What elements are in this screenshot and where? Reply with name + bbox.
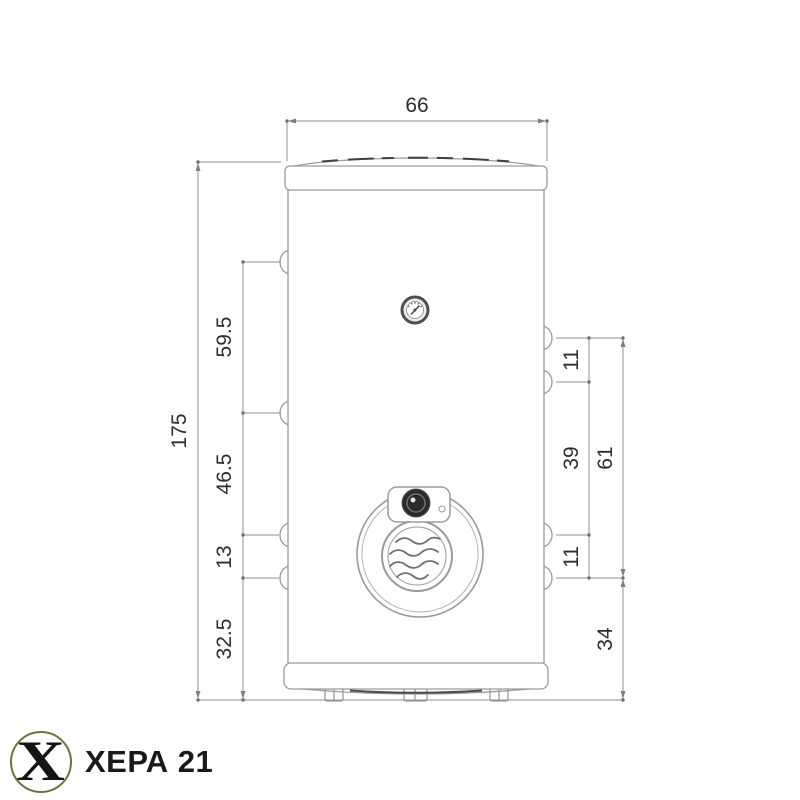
- tank-body: [288, 188, 544, 664]
- dim-right-segment-2-label: 39: [560, 446, 583, 469]
- brand-name: ХЕРА 21: [85, 744, 213, 780]
- tank-bottom-rim: [284, 663, 548, 689]
- housing-screw-icon: [439, 506, 445, 512]
- dim-right-segment-1-label: 11: [560, 349, 583, 371]
- boiler-dimension-diagram: 66 175 59.5 46.5 13 32.5 11 39 11 61 34: [0, 0, 800, 800]
- dim-right-segment-3-label: 11: [560, 546, 583, 568]
- dim-left-segment-3-label: 13: [213, 545, 236, 568]
- tank-drawing: [280, 158, 552, 701]
- thermometer-dial-icon: [402, 297, 428, 323]
- dim-left-segment-4-label: 32.5: [213, 619, 236, 660]
- logo-ring-icon: X: [10, 731, 72, 793]
- dim-left-segment-1-label: 59.5: [213, 317, 236, 358]
- dim-top-width-label: 66: [405, 94, 428, 117]
- dim-right-bottom-label: 34: [594, 627, 617, 651]
- tank-top-rim: [285, 166, 547, 190]
- dim-left-segment-2-label: 46.5: [213, 454, 236, 495]
- dim-right-group-label: 61: [594, 446, 617, 469]
- logo-x-icon: X: [17, 736, 66, 787]
- brand-logo: X ХЕРА 21: [10, 731, 213, 793]
- boiler-dimension-diagram-page: 66 175 59.5 46.5 13 32.5 11 39 11 61 34 …: [0, 0, 800, 800]
- dim-overall-height-label: 175: [168, 413, 191, 448]
- thermostat-knob-icon: [402, 489, 430, 517]
